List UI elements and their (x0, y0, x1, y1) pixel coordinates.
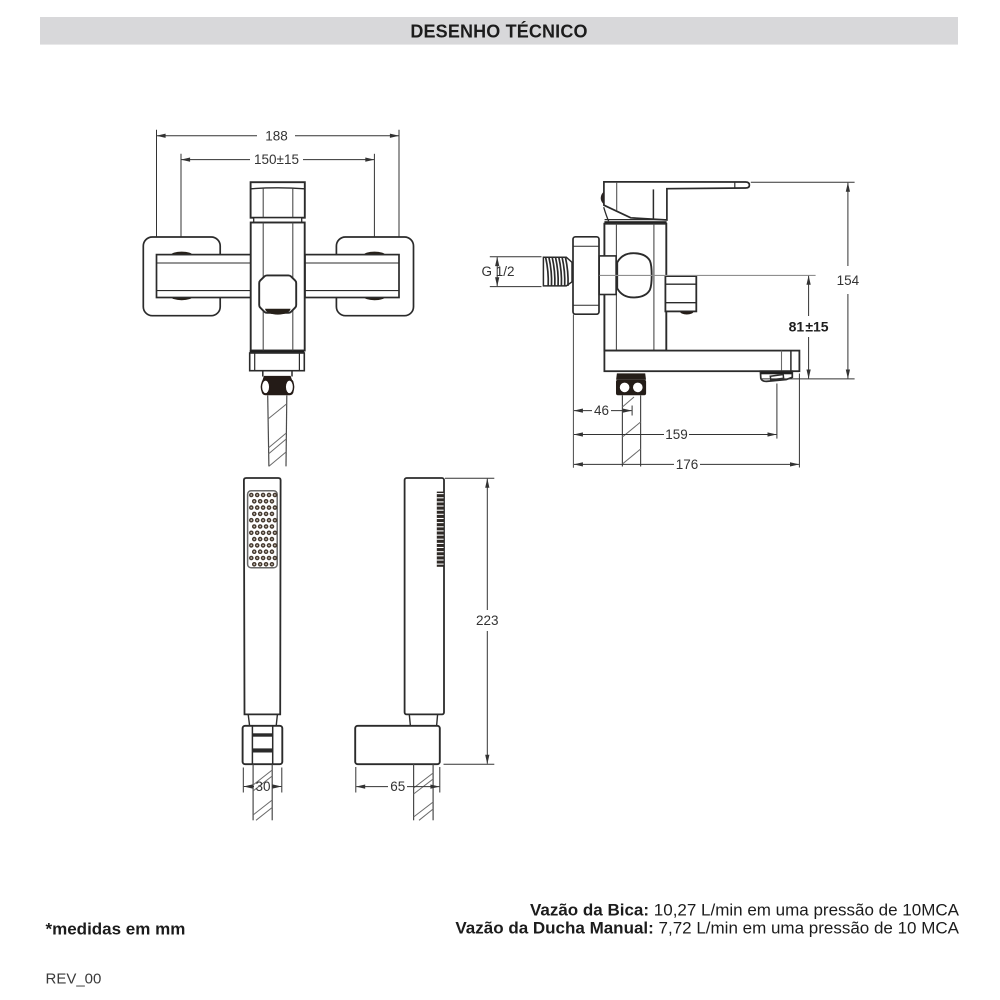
svg-text:Vazão da Bica: 10,27 L/min em: Vazão da Bica: 10,27 L/min em uma pressã… (530, 900, 960, 919)
svg-text:81 ±15: 81 ±15 (789, 319, 829, 335)
svg-text:30: 30 (255, 779, 270, 794)
svg-text:176: 176 (676, 457, 699, 472)
svg-text:150±15: 150±15 (254, 152, 299, 167)
svg-text:46: 46 (594, 403, 609, 418)
svg-text:DESENHO TÉCNICO: DESENHO TÉCNICO (410, 20, 587, 41)
svg-text:Vazão da Ducha Manual: 7,72 L/: Vazão da Ducha Manual: 7,72 L/min em uma… (455, 918, 959, 937)
svg-text:154: 154 (837, 273, 860, 288)
svg-text:159: 159 (665, 427, 688, 442)
svg-text:REV_00: REV_00 (46, 971, 102, 988)
svg-text:223: 223 (476, 613, 499, 628)
svg-text:65: 65 (390, 779, 405, 794)
svg-text:*medidas em mm: *medidas em mm (46, 920, 186, 939)
svg-text:G 1/2: G 1/2 (481, 264, 514, 279)
svg-text:188: 188 (265, 128, 288, 143)
